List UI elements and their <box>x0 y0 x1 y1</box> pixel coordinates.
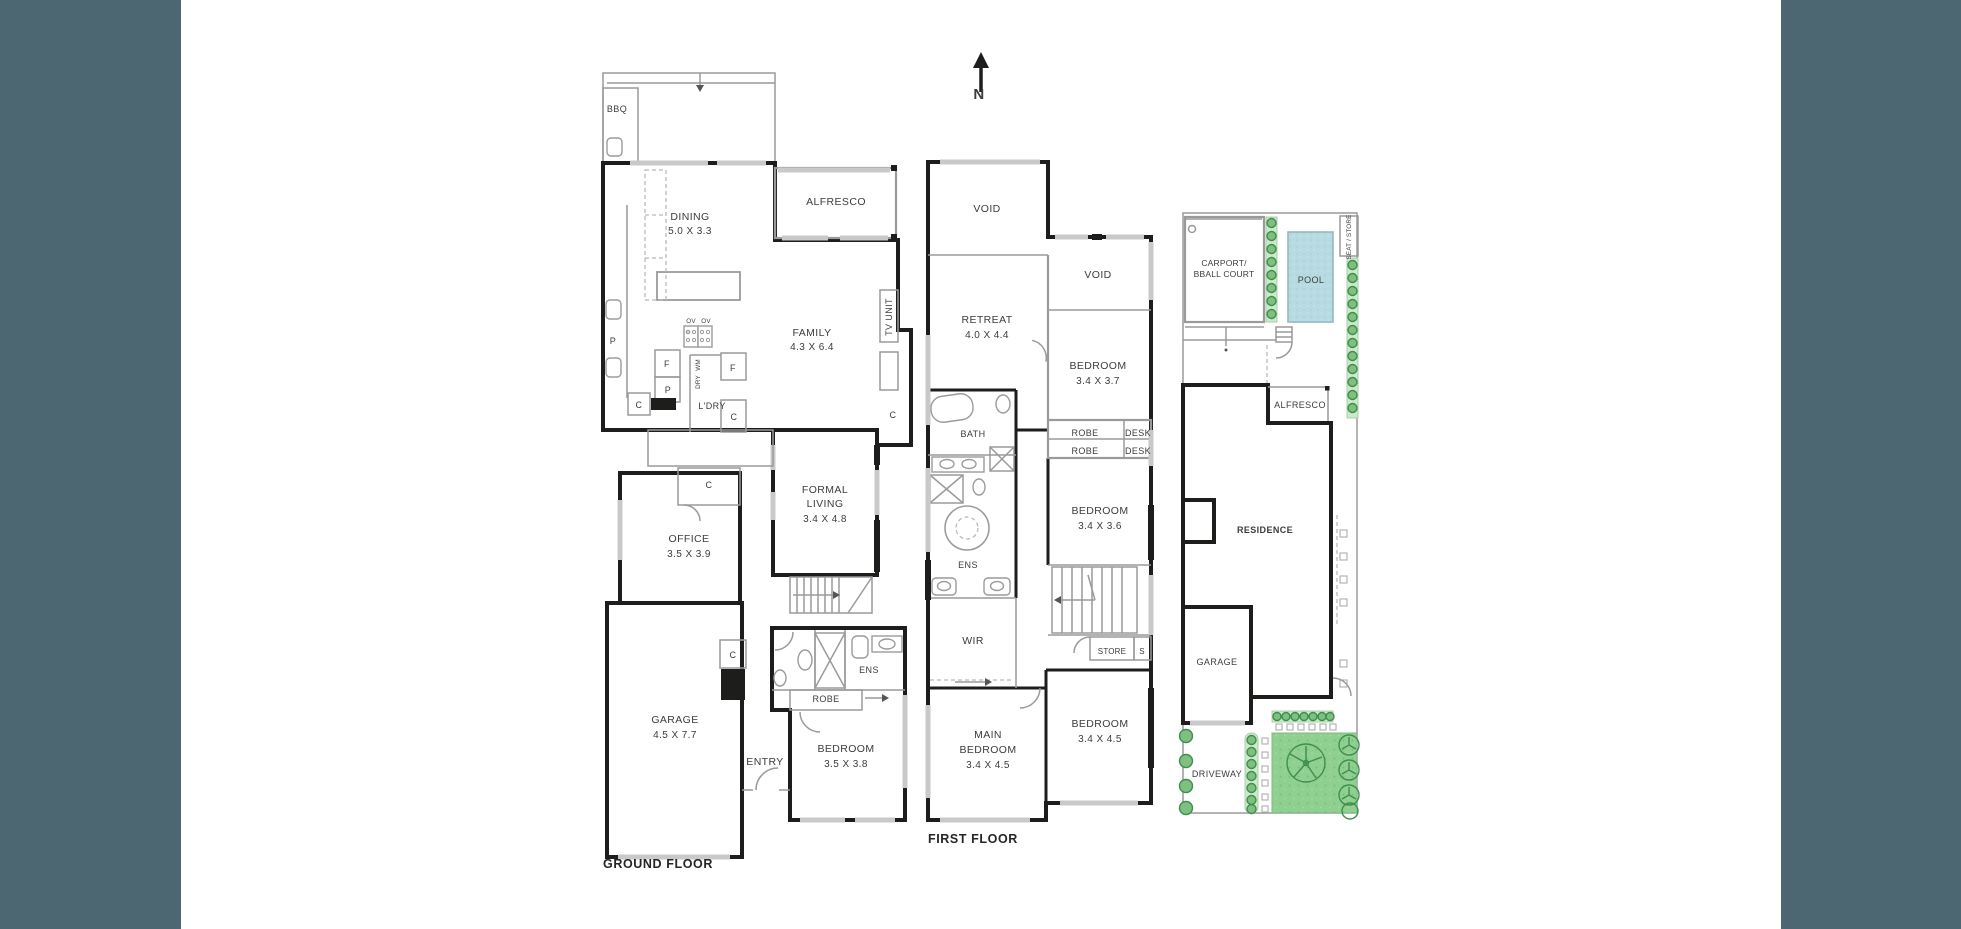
carport-label-1: CARPORT/ <box>1201 258 1247 268</box>
pantry-marker: P <box>610 336 616 346</box>
north-arrow-icon: N <box>973 52 989 103</box>
cupboard-marker: C <box>890 410 897 420</box>
bedroom2-label: BEDROOM <box>1069 360 1126 372</box>
formal-living-label-2: LIVING <box>807 498 844 510</box>
tv-unit-label: TV UNIT <box>884 298 894 336</box>
ff-ens-label: ENS <box>958 560 978 570</box>
residence-label: RESIDENCE <box>1237 525 1293 535</box>
main-bedroom-label-1: MAIN <box>974 729 1002 741</box>
dining-dims: 5.0 X 3.3 <box>668 226 712 237</box>
formal-living-label-1: FORMAL <box>802 484 848 496</box>
gf-bedroom-label: BEDROOM <box>817 743 874 755</box>
wir-label: WIR <box>962 635 984 647</box>
robe-label: ROBE <box>1071 428 1098 438</box>
gf-stairs <box>790 577 872 613</box>
stone-row <box>1276 724 1336 730</box>
office-label: OFFICE <box>669 533 710 545</box>
gf-ens-label: ENS <box>859 665 879 675</box>
cupboard-marker: C <box>731 412 738 422</box>
dryer-marker: DRY <box>695 375 702 389</box>
gf-robe-label: ROBE <box>812 694 839 704</box>
gf-bedroom-dims: 3.5 X 3.8 <box>824 759 868 770</box>
entry-label: ENTRY <box>746 756 783 768</box>
cupboard-marker: C <box>706 480 713 490</box>
site-plan: CARPORT/ BBALL COURT POOL SEAT / STORE A… <box>1180 213 1360 819</box>
office-dims: 3.5 X 3.9 <box>667 549 711 560</box>
site-alfresco-label: ALFRESCO <box>1274 400 1326 410</box>
left-sidebar-panel <box>0 0 181 929</box>
bedroom2-dims: 3.4 X 3.7 <box>1076 376 1120 387</box>
void-label: VOID <box>973 203 1000 215</box>
dining-label: DINING <box>670 211 709 223</box>
ground-floor-title: GROUND FLOOR <box>603 857 713 871</box>
hedge-row-top <box>1272 711 1334 722</box>
main-bedroom-label-2: BEDROOM <box>959 744 1016 756</box>
seat-store-label: SEAT / STORE <box>1346 214 1353 259</box>
hedge-strip-left <box>1266 217 1277 322</box>
deck-outline <box>603 73 775 163</box>
robe-label: ROBE <box>1071 446 1098 456</box>
first-floor-plan: VOID VOID RETREAT 4.0 X 4.4 BEDROOM 3.4 … <box>928 162 1151 846</box>
hedge-strip-driveway <box>1245 733 1258 814</box>
bedroom-block-walls <box>772 628 905 820</box>
first-floor-title: FIRST FLOOR <box>928 832 1018 846</box>
site-garage-label: GARAGE <box>1197 657 1238 667</box>
ground-floor-plan: BBQ DINING 5.0 X 3.3 ALFRESCO FAMILY 4.3… <box>603 73 911 871</box>
desk-label: DESK <box>1125 446 1151 456</box>
stepping-stones <box>1333 515 1351 696</box>
gf-garage-dims: 4.5 X 7.7 <box>653 730 697 741</box>
fridge-marker: F <box>664 359 670 369</box>
island-bench <box>657 272 740 300</box>
floorplan-page: N <box>0 0 1961 929</box>
store-s-label: S <box>1139 647 1145 656</box>
gf-alfresco-label: ALFRESCO <box>806 196 866 208</box>
bedroom3-dims: 3.4 X 3.6 <box>1078 521 1122 532</box>
carport-label-2: BBALL COURT <box>1194 269 1255 279</box>
laundry-label: L'DRY <box>698 401 726 411</box>
gf-garage-label: GARAGE <box>651 714 698 726</box>
retreat-dims: 4.0 X 4.4 <box>965 330 1009 341</box>
bbq-label: BBQ <box>607 104 627 114</box>
main-bedroom-dims: 3.4 X 4.5 <box>966 760 1010 771</box>
hedge-strip-right <box>1347 258 1358 418</box>
family-label: FAMILY <box>793 327 832 339</box>
oven-marker: OV <box>686 318 696 325</box>
desk-label: DESK <box>1125 428 1151 438</box>
formal-living-dims: 3.4 X 4.8 <box>803 514 847 525</box>
store-label: STORE <box>1098 647 1126 656</box>
oven-marker: OV <box>701 318 711 325</box>
garden-area <box>1180 711 1360 819</box>
driveway-label: DRIVEWAY <box>1192 769 1242 779</box>
bath-label: BATH <box>961 429 986 439</box>
cupboard-marker: C <box>636 400 643 410</box>
bedroom3-label: BEDROOM <box>1071 505 1128 517</box>
floorplan-image: N <box>0 0 1961 929</box>
pantry-marker: P <box>665 385 671 395</box>
north-label: N <box>973 86 984 103</box>
cupboard-marker: C <box>730 650 737 660</box>
pool-label: POOL <box>1298 275 1325 285</box>
gf-hall-lines <box>648 430 773 466</box>
right-sidebar-panel <box>1781 0 1961 929</box>
void-label: VOID <box>1084 269 1111 281</box>
bedroom4-dims: 3.4 X 4.5 <box>1078 734 1122 745</box>
bedroom4-label: BEDROOM <box>1071 718 1128 730</box>
washer-marker: WM <box>695 359 702 371</box>
family-dims: 4.3 X 6.4 <box>790 342 834 353</box>
pool-gate-steps <box>1267 327 1292 385</box>
stone-column <box>1262 738 1268 812</box>
fridge-marker: F <box>730 363 736 373</box>
retreat-label: RETREAT <box>961 314 1012 326</box>
shrub-column-left <box>1180 730 1193 815</box>
